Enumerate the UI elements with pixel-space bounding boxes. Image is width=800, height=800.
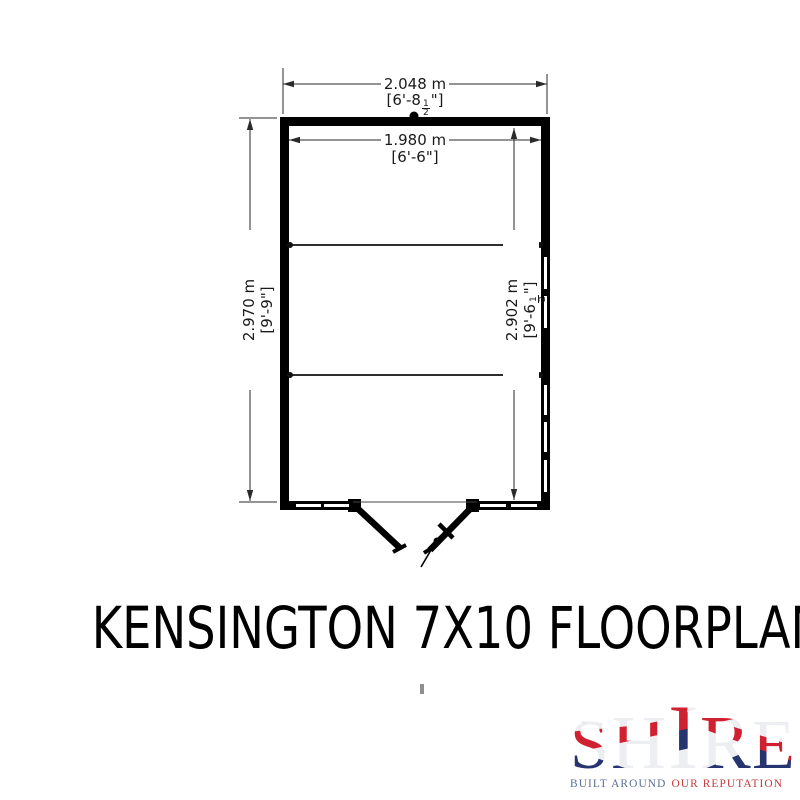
dimension-right-imperial: [9'-612"] [521,230,547,390]
union-jack-fill [568,688,800,774]
dimension-top-outer-imperial: [6'-812"] [340,92,490,117]
shire-logo: S H I R E BUILT AROUNDOUR REPUTATION [568,688,800,794]
dimension-right-metric: 2.902 m [503,230,521,390]
fraction: 12 [422,100,430,117]
dimension-left: 2.970 m [9'-9"] [240,230,276,390]
left-wall [280,117,289,510]
fraction: 12 [530,295,547,303]
dimension-right: 2.902 m [9'-612"] [503,230,539,390]
page: 2.048 m [6'-812"] 1.980 m [6'-6"] 2.970 … [0,0,800,800]
floorplan-diagram [0,0,800,800]
dimension-top-inner-metric: 1.980 m [340,132,490,148]
double-door [353,502,477,567]
dimension-top-inner-imperial: [6'-6"] [340,149,490,165]
scrollbar-dash [420,684,424,694]
dimension-top-outer-metric: 2.048 m [340,76,490,92]
page-title: KENSINGTON 7X10 FLOORPLAN [0,596,800,660]
dimension-left-metric: 2.970 m [240,230,258,390]
logo-tagline: BUILT AROUNDOUR REPUTATION [570,778,783,790]
dimension-left-imperial: [9'-9"] [258,230,276,390]
front-wall-windows [296,504,537,507]
door-leaf-left [356,507,400,548]
